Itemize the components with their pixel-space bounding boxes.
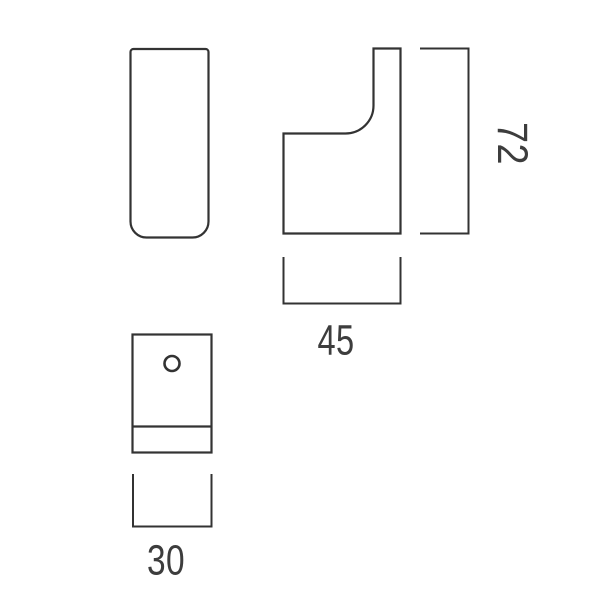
outline-layer (131, 49, 469, 527)
dim-bracket-height (420, 49, 469, 234)
plate-view (133, 335, 212, 453)
dimension-label-width: 30 (147, 537, 185, 585)
front-view-outline (131, 49, 209, 238)
dimension-label-height: 72 (488, 122, 536, 165)
dim-bracket-depth (284, 257, 401, 304)
side-view-outline (284, 49, 401, 234)
dimension-label-depth: 45 (318, 317, 355, 365)
dimension-drawing-canvas: 72 45 30 (0, 0, 600, 600)
plate-outline (133, 335, 212, 453)
dimension-drawing: 72 45 30 (0, 0, 600, 600)
dimension-labels: 72 45 30 (147, 122, 536, 585)
dim-bracket-width (133, 474, 212, 527)
screw-hole (165, 356, 180, 371)
